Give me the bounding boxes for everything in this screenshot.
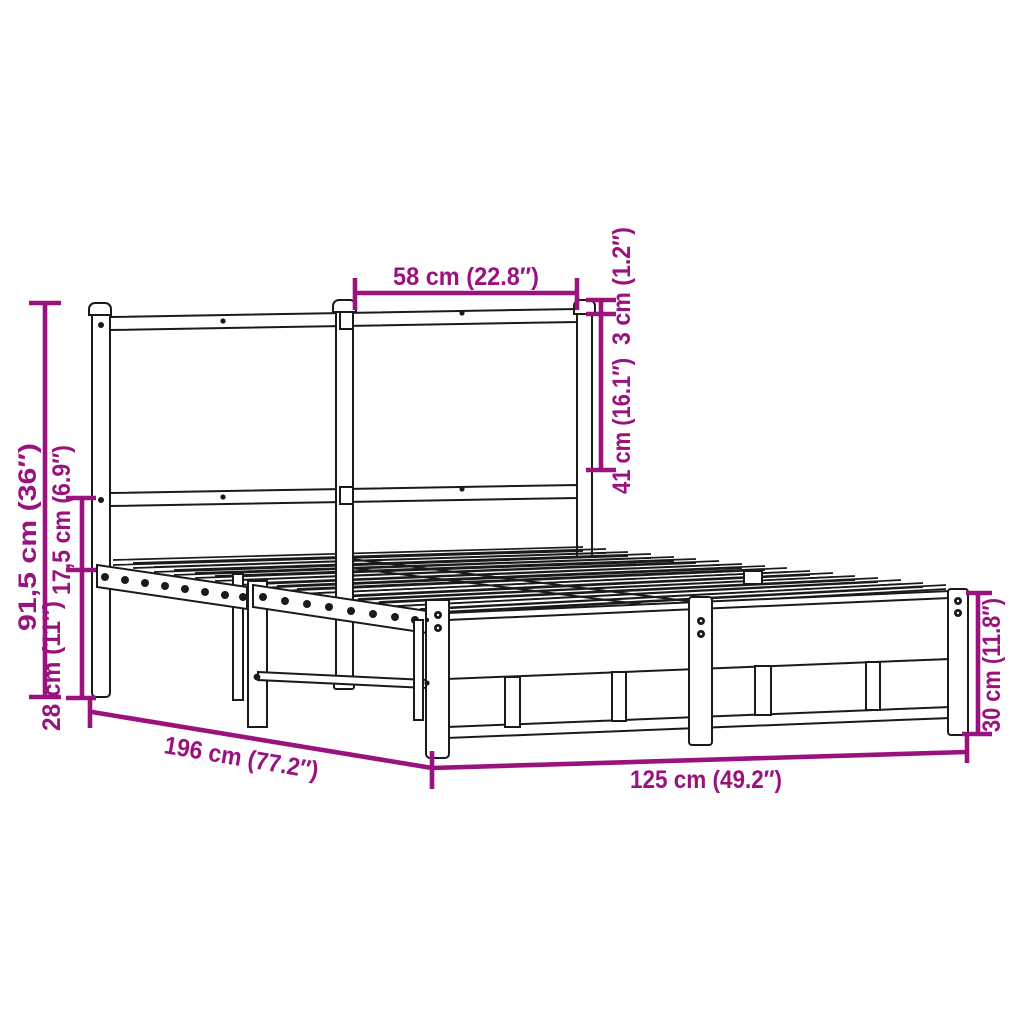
left-post-cap (89, 303, 111, 315)
headboard-right-post (574, 300, 595, 557)
dim-label-headboard-cap-height: 3 cm (1.2″) (608, 227, 636, 345)
middle-post-bracket (340, 312, 353, 329)
left-post-bolt (98, 497, 104, 503)
dim-label-headboard-section-width: 58 cm (22.8″) (393, 263, 539, 291)
left-post-bolt (98, 322, 104, 328)
dim-label-headboard-panel-height: 41 cm (16.1″) (608, 358, 636, 494)
dim-label-foot-end-height: 30 cm (11.8″) (978, 598, 1006, 732)
dim-headboard-cap-and-panel: 3 cm (1.2″) 41 cm (16.1″) (586, 227, 636, 494)
bed-frame-dimension-diagram: 58 cm (22.8″) 3 cm (1.2″) 41 cm (16.1″) … (0, 0, 1024, 1024)
dim-label-headboard-to-frame-gap: 17,5 cm (6.9″) (48, 445, 76, 595)
dim-label-under-frame-clearance: 28 cm (11″) (38, 601, 66, 731)
dim-label-frame-width: 125 cm (49.2″) (630, 766, 782, 794)
diagram-canvas: 58 cm (22.8″) 3 cm (1.2″) 41 cm (16.1″) … (0, 0, 1024, 1024)
foot-back-left-leg (414, 620, 423, 720)
middle-post-bracket (340, 487, 353, 504)
far-rail-bracket (744, 571, 762, 584)
foot-left-leg (426, 600, 449, 758)
bed-drawing (89, 300, 968, 758)
foot-frame (414, 589, 968, 758)
headboard-middle-post (333, 300, 356, 689)
dim-headboard-section-width: 58 cm (22.8″) (355, 263, 577, 310)
middle-post-cap (333, 300, 356, 312)
dim-label-frame-length: 196 cm (77.2″) (162, 731, 320, 785)
